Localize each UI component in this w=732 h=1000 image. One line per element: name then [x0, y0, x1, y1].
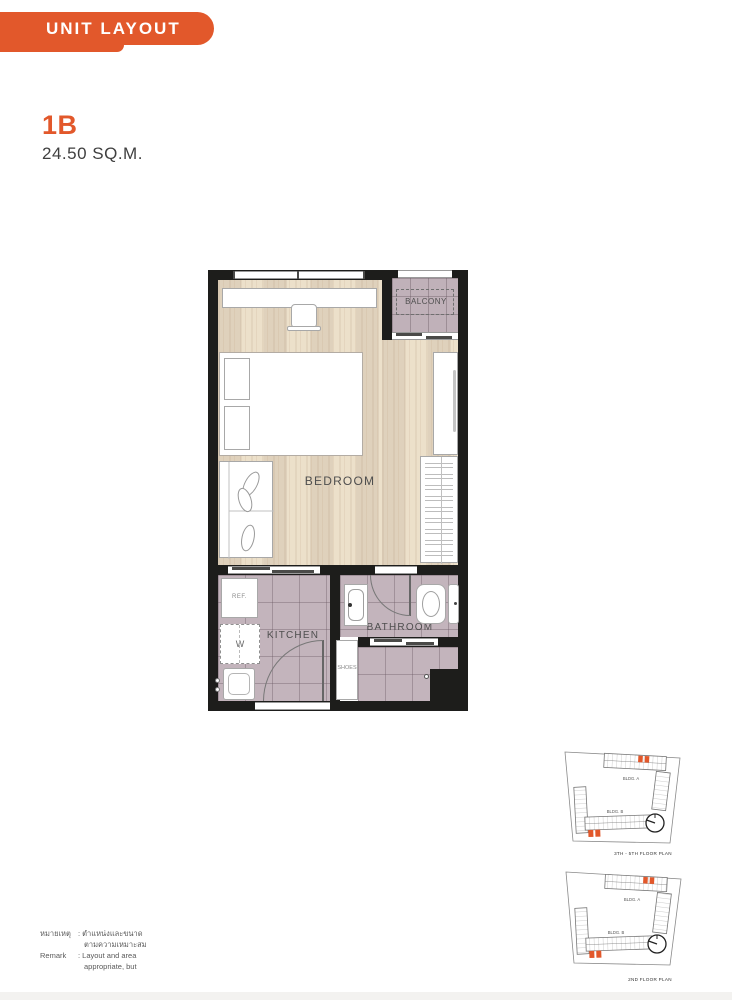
site-plan-caption: 2ND FLOOR PLAN — [628, 977, 672, 982]
sink-basin — [228, 673, 250, 695]
faucet-dot — [454, 602, 457, 605]
washer-label: W — [221, 639, 259, 649]
door-panel — [272, 570, 314, 573]
compass-icon — [646, 814, 664, 832]
wall-segment — [208, 701, 458, 711]
shoes-cabinet: SHOES — [336, 640, 358, 700]
bathroom-sink — [344, 584, 368, 626]
compass-icon — [648, 935, 666, 953]
wall-segment — [458, 270, 468, 711]
pillow — [224, 406, 250, 450]
balcony-label: BALCONY — [397, 297, 455, 306]
refrigerator-label: REF. — [222, 594, 257, 600]
kitchen-sink — [223, 668, 255, 700]
wall-segment — [208, 270, 218, 711]
faucet-knob — [215, 678, 220, 683]
wall-segment — [382, 270, 392, 340]
cabinet-handle — [453, 370, 456, 432]
remark-row-th: หมายเหตุ : ตำแหน่งและขนาด — [40, 928, 194, 939]
door-panel — [374, 639, 402, 642]
page: UNIT LAYOUT 1B 24.50 SQ.M. — [0, 0, 732, 1000]
page-bottom-strip — [0, 992, 732, 1000]
banner-tab-shape — [0, 45, 124, 52]
remark-row-en2: appropriate, but — [40, 961, 194, 972]
unit-area: 24.50 SQ.M. — [42, 144, 143, 164]
balcony-railing — [398, 270, 452, 278]
bldg-a-label: BLDG. A — [624, 897, 640, 902]
highlight-unit — [638, 756, 643, 763]
remark-label-en: Remark — [40, 950, 78, 961]
site-plan-caption: 3TH - 5TH FLOOR PLAN — [614, 851, 672, 856]
washer: W — [220, 624, 260, 664]
bedroom-label: BEDROOM — [280, 474, 400, 488]
bldg-b-label: BLDG. B — [608, 930, 625, 935]
highlight-unit — [645, 756, 650, 763]
bathroom-door-opening — [375, 566, 417, 574]
wall-cap — [452, 270, 458, 278]
door-panel — [396, 333, 422, 336]
highlight-unit — [643, 877, 648, 884]
sofa — [219, 461, 273, 558]
unit-code: 1B — [42, 110, 78, 141]
door-panel — [232, 567, 270, 570]
banner-label: UNIT LAYOUT — [46, 19, 181, 38]
washer-divider — [239, 625, 240, 663]
kitchen-door-opening — [255, 702, 330, 710]
bathroom-basin-right — [448, 584, 459, 624]
remark-text-en1: : Layout and area — [78, 950, 188, 961]
chair — [291, 304, 317, 328]
toilet — [416, 584, 446, 624]
refrigerator: REF. — [221, 578, 258, 618]
sofa-cushion-leaves — [220, 462, 274, 559]
wardrobe-divider — [441, 457, 442, 564]
bldg-b-label: BLDG. B — [607, 809, 624, 814]
highlight-unit — [596, 951, 601, 958]
faucet-dot — [348, 603, 352, 607]
highlight-unit — [650, 877, 655, 884]
wall-cap — [392, 270, 398, 278]
door-stop — [424, 674, 429, 679]
remark-text-th1: : ตำแหน่งและขนาด — [78, 928, 188, 939]
wall-notch — [430, 669, 468, 711]
site-plan-lower: BLDG. A BLDG. B 2ND FLOOR PLAN — [558, 862, 702, 992]
wardrobe-slats — [425, 463, 453, 558]
remark-row-en: Remark : Layout and area — [40, 950, 194, 961]
faucet-knob — [215, 687, 220, 692]
window-tick — [233, 271, 235, 279]
door-panel — [426, 336, 452, 339]
site-plan-upper: BLDG. A BLDG. B 3TH - 5TH FLOOR PLAN — [558, 745, 702, 860]
floor-plan: BEDROOM BALCONY KITCHEN BATHROOM REF. W — [205, 262, 471, 711]
bedroom-window — [233, 271, 365, 279]
pillow — [224, 358, 250, 400]
remark-row-th2: ตามความเหมาะสม — [40, 939, 194, 950]
balcony-label-box: BALCONY — [396, 289, 454, 315]
chair-base — [287, 326, 321, 331]
banner-shape: UNIT LAYOUT — [0, 12, 214, 45]
window-tick — [363, 271, 365, 279]
door-panel — [406, 642, 434, 645]
window-tick — [297, 271, 299, 279]
shoes-label: SHOES — [336, 665, 358, 671]
remark-label-th: หมายเหตุ — [40, 928, 78, 939]
highlight-unit — [589, 951, 594, 958]
toilet-seat — [422, 591, 440, 617]
remark-block: หมายเหตุ : ตำแหน่งและขนาด ตามความเหมาะสม… — [40, 928, 194, 972]
highlight-unit — [595, 830, 600, 837]
highlight-unit — [588, 830, 593, 837]
bldg-a-label: BLDG. A — [623, 776, 639, 781]
wardrobe — [420, 456, 458, 563]
building-a — [604, 753, 667, 770]
remark-text-en2: appropriate, but — [78, 961, 194, 972]
remark-text-th2: ตามความเหมาะสม — [78, 939, 194, 950]
building-a — [605, 874, 668, 891]
